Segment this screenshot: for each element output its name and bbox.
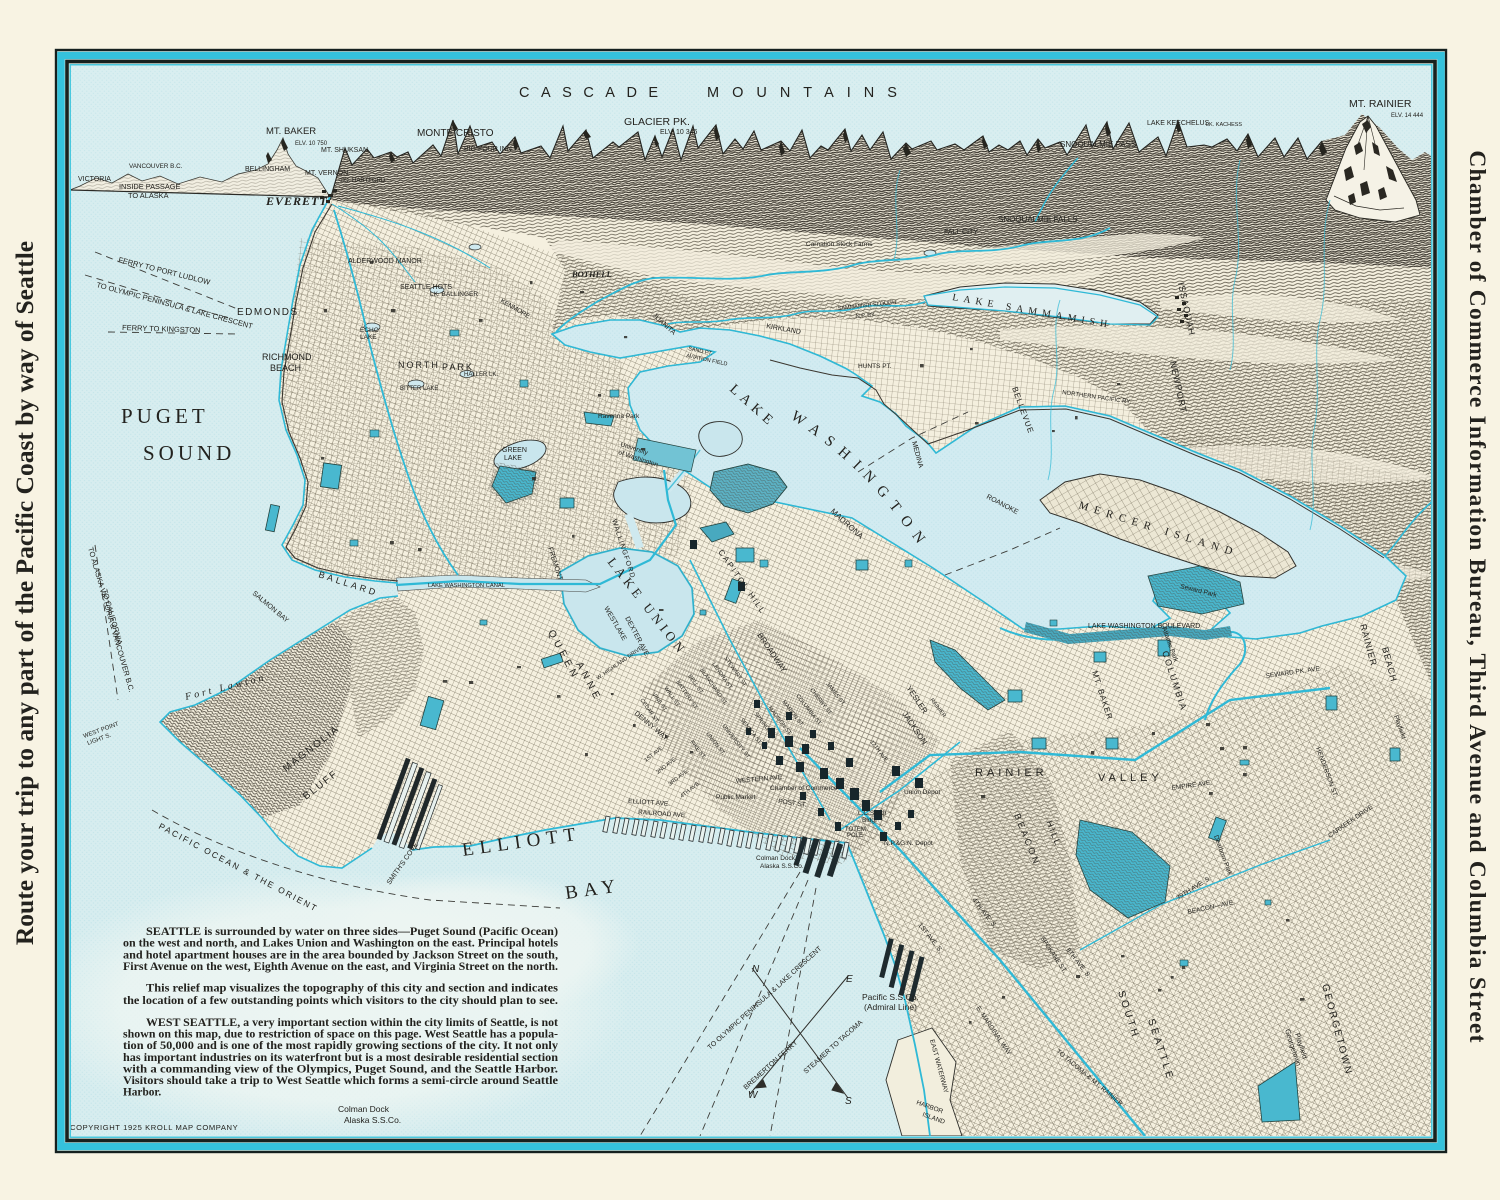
svg-text:Route your trip to any part of: Route your trip to any part of the Pacif… (10, 241, 39, 945)
svg-text:SEATTLE HGTS: SEATTLE HGTS (400, 284, 452, 291)
svg-text:N.P.&G.N. Depot: N.P.&G.N. Depot (884, 840, 933, 847)
svg-text:shown on this map, due to rest: shown on this map, due to restriction of… (123, 1029, 558, 1041)
svg-text:BEACH: BEACH (270, 363, 301, 373)
svg-text:SNOQUALMIE FALLS: SNOQUALMIE FALLS (998, 215, 1078, 224)
svg-text:LK. BALLINGER: LK. BALLINGER (430, 291, 478, 298)
svg-text:L.C.Smith: L.C.Smith (858, 810, 887, 817)
svg-text:LAKE: LAKE (360, 334, 377, 341)
svg-text:Colman Dock: Colman Dock (756, 855, 796, 862)
svg-text:Visitors should take a trip to: Visitors should take a trip to West Seat… (123, 1075, 558, 1087)
svg-text:CASCADE: CASCADE (519, 85, 670, 101)
svg-text:ALDERWOOD MANOR: ALDERWOOD MANOR (348, 258, 422, 265)
svg-text:Carnation Stock Farms: Carnation Stock Farms (806, 241, 873, 248)
svg-text:ECHO: ECHO (360, 327, 379, 334)
svg-text:VALLEY: VALLEY (1098, 772, 1163, 784)
svg-text:E: E (846, 974, 853, 985)
svg-text:N: N (752, 964, 760, 975)
svg-text:Chamber of Commerce Informatio: Chamber of Commerce Information Bureau, … (1464, 150, 1490, 1043)
svg-text:GREEN: GREEN (502, 447, 527, 454)
svg-text:SNOQUALMIE PASS: SNOQUALMIE PASS (1060, 140, 1136, 149)
svg-text:PARK: PARK (442, 362, 474, 372)
svg-text:INSIDE PASSAGE: INSIDE PASSAGE (119, 182, 181, 191)
svg-text:the location of a few outstand: the location of a few outstanding points… (123, 995, 558, 1007)
svg-text:MOUNTAINS: MOUNTAINS (707, 85, 910, 101)
svg-text:GLACIER PK.: GLACIER PK. (624, 116, 690, 128)
svg-text:LK. KACHESS: LK. KACHESS (1206, 122, 1242, 128)
svg-text:SEATTLE is surrounded by water: SEATTLE is surrounded by water on three … (146, 926, 558, 938)
svg-text:COPYRIGHT 1925 KROLL MAP COMPA: COPYRIGHT 1925 KROLL MAP COMPANY (70, 1123, 238, 1132)
svg-text:Ravenna Park: Ravenna Park (598, 413, 640, 420)
svg-text:TO ALASKA: TO ALASKA (128, 191, 169, 200)
svg-text:ELV. 14 444: ELV. 14 444 (1391, 113, 1424, 119)
svg-text:VANCOUVER B.C.: VANCOUVER B.C. (129, 163, 183, 170)
svg-text:W: W (748, 1090, 759, 1101)
svg-text:Harbor.: Harbor. (123, 1087, 161, 1099)
svg-text:tion of 50,000 and is one of t: tion of 50,000 and is one of the most ra… (123, 1040, 558, 1052)
svg-text:MONTE CRISTO: MONTE CRISTO (417, 128, 494, 139)
svg-text:NORTH: NORTH (398, 360, 440, 370)
svg-text:HALLER LK.: HALLER LK. (464, 372, 498, 378)
svg-text:on the west and north, and Lak: on the west and north, and Lakes Union a… (123, 938, 559, 950)
svg-text:LAKE WASHINGTON CANAL: LAKE WASHINGTON CANAL (428, 583, 506, 589)
svg-text:Public Market: Public Market (716, 794, 756, 801)
svg-text:Union Depot: Union Depot (904, 789, 940, 796)
svg-text:LAKE: LAKE (504, 455, 522, 462)
svg-text:Colman Dock: Colman Dock (338, 1104, 390, 1114)
svg-text:Pacific S.S.Co.: Pacific S.S.Co. (862, 992, 919, 1002)
svg-text:FALL CITY: FALL CITY (944, 229, 978, 236)
svg-text:RICHMOND: RICHMOND (262, 352, 312, 362)
svg-text:HUNTS PT.: HUNTS PT. (858, 363, 892, 370)
svg-text:LAKE WASHINGTON BOULEVARD: LAKE WASHINGTON BOULEVARD (1088, 623, 1200, 630)
svg-text:SOUND: SOUND (143, 441, 235, 465)
svg-text:PUGET: PUGET (121, 404, 209, 428)
svg-text:(Admiral Line): (Admiral Line) (864, 1002, 917, 1012)
svg-text:MT. RAINIER: MT. RAINIER (1349, 98, 1412, 110)
svg-text:has important industries on it: has important industries on its waterfro… (123, 1052, 559, 1064)
svg-text:MT. SHUKSAN: MT. SHUKSAN (321, 147, 368, 154)
svg-text:SO. HARTFORD: SO. HARTFORD (340, 178, 386, 184)
svg-text:with a commanding view of the: with a commanding view of the Olympics, … (123, 1063, 558, 1075)
svg-text:Chamber of Commerce: Chamber of Commerce (770, 785, 838, 792)
svg-text:VICTORIA: VICTORIA (78, 176, 111, 183)
svg-text:POLE: POLE (847, 833, 863, 839)
svg-text:BIG FOUR INN: BIG FOUR INN (464, 146, 512, 153)
svg-text:Alaska S.S.Co.: Alaska S.S.Co. (344, 1115, 401, 1125)
svg-text:BITTER LAKE: BITTER LAKE (400, 386, 438, 392)
svg-text:S: S (845, 1096, 852, 1107)
svg-text:LAKE KEECHELUS: LAKE KEECHELUS (1147, 120, 1210, 127)
svg-text:WEST SEATTLE, a very important: WEST SEATTLE, a very important section w… (146, 1017, 558, 1029)
svg-text:ELV. 10 346: ELV. 10 346 (660, 129, 697, 136)
svg-text:Bldg.: Bldg. (862, 817, 877, 824)
svg-text:BOTHELL: BOTHELL (571, 269, 612, 279)
svg-text:and hotel apartment houses are: and hotel apartment houses are in the ar… (123, 949, 558, 961)
svg-text:MT. BAKER: MT. BAKER (266, 126, 316, 137)
svg-text:BELLINGHAM: BELLINGHAM (245, 166, 290, 173)
svg-text:EVERETT: EVERETT (265, 194, 328, 208)
svg-text:First Avenue on the west, Eigh: First Avenue on the west, Eighth Avenue … (123, 961, 558, 973)
svg-text:This relief map visualizes the: This relief map visualizes the topograph… (146, 983, 559, 995)
svg-text:RAINIER: RAINIER (975, 767, 1048, 779)
svg-text:Alaska S.S.Co.: Alaska S.S.Co. (760, 863, 804, 870)
svg-text:EDMONDS: EDMONDS (237, 307, 299, 318)
svg-text:MT. VERNON: MT. VERNON (305, 170, 348, 177)
